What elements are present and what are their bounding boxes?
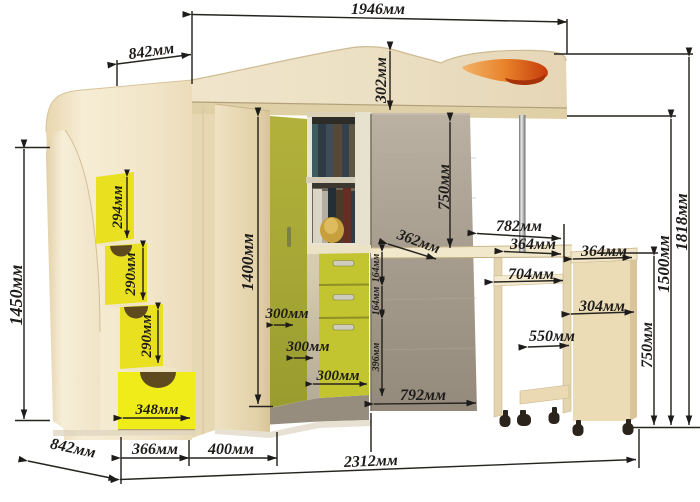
svg-text:300мм: 300мм bbox=[315, 368, 359, 384]
svg-text:842мм: 842мм bbox=[127, 40, 175, 63]
svg-text:366мм: 366мм bbox=[131, 441, 178, 458]
svg-text:290мм: 290мм bbox=[123, 252, 139, 296]
svg-text:364мм: 364мм bbox=[509, 236, 556, 253]
svg-text:782мм: 782мм bbox=[496, 218, 542, 235]
svg-text:1500мм: 1500мм bbox=[654, 235, 673, 293]
svg-text:164мм: 164мм bbox=[371, 287, 382, 316]
svg-text:550мм: 550мм bbox=[529, 328, 575, 345]
svg-text:302мм: 302мм bbox=[373, 57, 390, 104]
svg-text:1400мм: 1400мм bbox=[238, 233, 257, 291]
svg-text:704мм: 704мм bbox=[508, 266, 554, 283]
svg-text:304мм: 304мм bbox=[578, 298, 625, 315]
svg-text:290мм: 290мм bbox=[139, 314, 155, 358]
svg-text:750мм: 750мм bbox=[436, 164, 453, 210]
svg-text:400мм: 400мм bbox=[207, 441, 254, 458]
svg-text:348мм: 348мм bbox=[134, 402, 178, 418]
svg-text:300мм: 300мм bbox=[264, 306, 308, 322]
svg-text:364мм: 364мм bbox=[580, 243, 627, 260]
svg-text:1946мм: 1946мм bbox=[351, 1, 405, 18]
svg-text:294мм: 294мм bbox=[110, 185, 126, 229]
svg-text:792мм: 792мм bbox=[400, 387, 446, 404]
svg-text:396мм: 396мм bbox=[371, 343, 382, 373]
svg-text:300мм: 300мм bbox=[285, 339, 329, 355]
svg-text:1818мм: 1818мм bbox=[672, 193, 691, 251]
svg-text:164мм: 164мм bbox=[371, 254, 382, 283]
svg-text:2312мм: 2312мм bbox=[343, 452, 399, 471]
svg-text:1450мм: 1450мм bbox=[6, 265, 26, 326]
svg-text:750мм: 750мм bbox=[639, 322, 656, 368]
